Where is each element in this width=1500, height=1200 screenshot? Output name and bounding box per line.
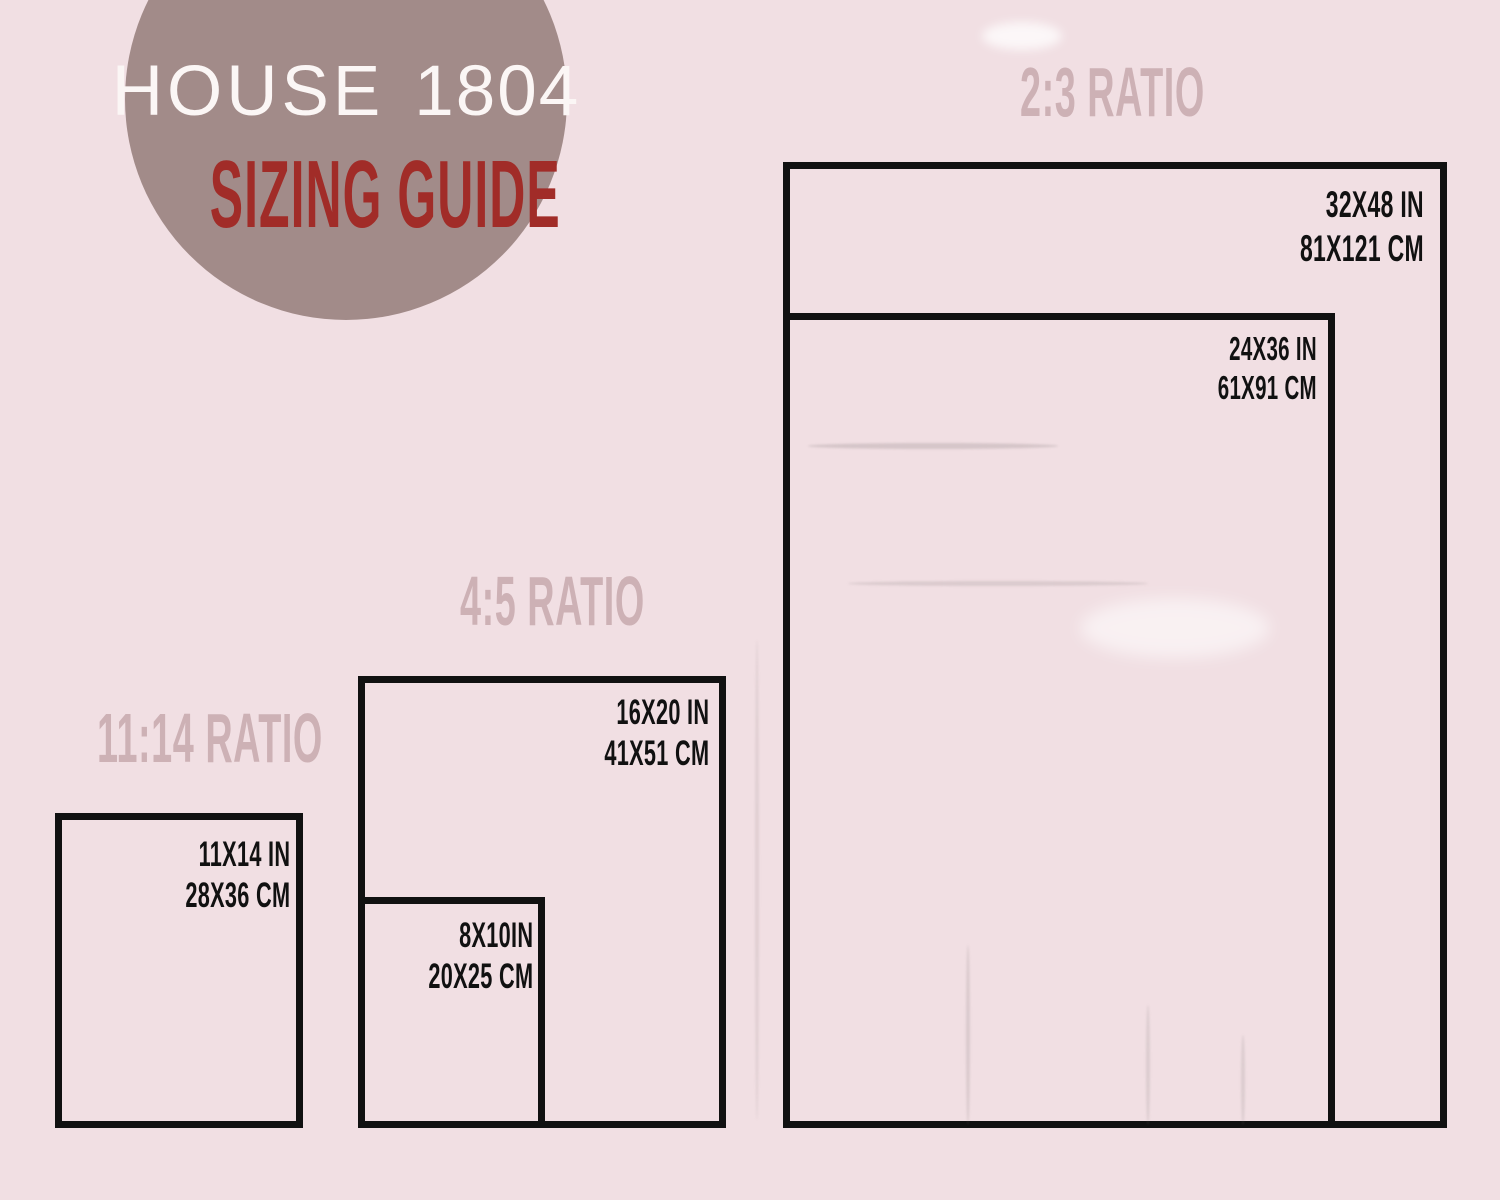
size-cm: 81X121 CM (1300, 227, 1424, 271)
size-label-11x14: 11X14 IN 28X36 CM (185, 834, 290, 917)
size-label-8x10: 8X10IN 20X25 CM (428, 915, 533, 998)
brand-name: HOUSE (112, 56, 385, 127)
size-rect-11x14: 11X14 IN 28X36 CM (55, 813, 303, 1128)
brand-year: 1804 (414, 56, 580, 127)
size-cm: 20X25 CM (428, 956, 533, 997)
size-inches: 24X36 IN (1218, 330, 1317, 369)
size-cm: 41X51 CM (604, 733, 709, 774)
size-cm: 61X91 CM (1218, 369, 1317, 408)
size-label-24x36: 24X36 IN 61X91 CM (1218, 330, 1317, 408)
ratio-label-4-5: 4:5 RATIO (460, 566, 622, 636)
ratio-label-11-14: 11:14 RATIO (97, 703, 259, 773)
size-label-32x48: 32X48 IN 81X121 CM (1300, 183, 1424, 270)
brand-line: HOUSE 1804 (125, 48, 567, 134)
size-rect-24x36: 24X36 IN 61X91 CM (783, 313, 1335, 1128)
size-rect-8x10: 8X10IN 20X25 CM (358, 897, 545, 1128)
size-inches: 8X10IN (428, 915, 533, 956)
artifact-smudge (982, 22, 1062, 50)
sizing-guide-poster: HOUSE 1804 SIZING GUIDE 2:3 RATIO 4:5 RA… (0, 0, 1500, 1200)
size-inches: 11X14 IN (185, 834, 290, 875)
size-inches: 16X20 IN (604, 692, 709, 733)
size-inches: 32X48 IN (1300, 183, 1424, 227)
size-cm: 28X36 CM (185, 875, 290, 916)
size-label-16x20: 16X20 IN 41X51 CM (604, 692, 709, 775)
artifact-smudge (755, 640, 759, 1120)
sizing-guide-title: SIZING GUIDE (210, 147, 480, 243)
ratio-label-2-3: 2:3 RATIO (1020, 57, 1182, 127)
